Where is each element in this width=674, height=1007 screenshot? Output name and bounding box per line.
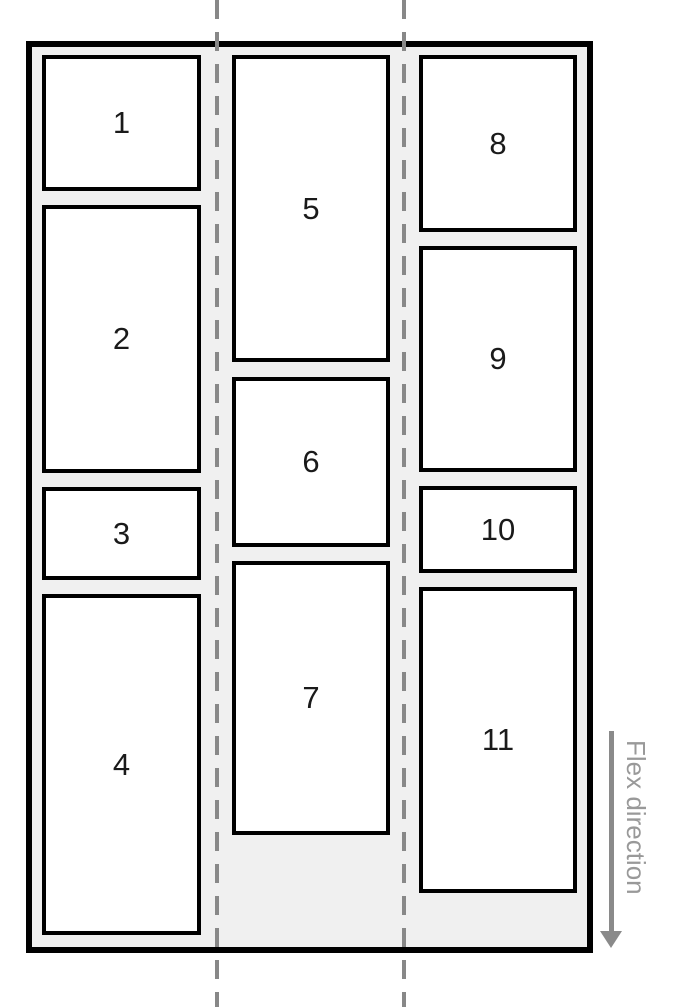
flex-item-3: 3: [42, 487, 201, 580]
flex-item-label: 1: [113, 105, 130, 141]
flex-container: 1 2 3 4 5 6 7 8 9 10 11: [26, 41, 593, 953]
flex-item-6: 6: [232, 377, 390, 547]
flex-direction-arrowhead-icon: [600, 931, 622, 948]
flex-item-10: 10: [419, 486, 577, 573]
flex-item-7: 7: [232, 561, 390, 835]
flex-direction-arrow-icon: [609, 731, 614, 932]
flex-wrap-diagram: 1 2 3 4 5 6 7 8 9 10 11 Flex direction: [0, 0, 674, 1007]
flex-item-11: 11: [419, 587, 577, 893]
flex-item-label: 4: [113, 747, 130, 783]
flex-item-label: 3: [113, 516, 130, 552]
flex-direction-label: Flex direction: [620, 740, 651, 895]
flex-item-5: 5: [232, 55, 390, 362]
flex-item-4: 4: [42, 594, 201, 935]
flex-item-2: 2: [42, 205, 201, 473]
flex-item-label: 10: [481, 512, 515, 548]
flex-item-9: 9: [419, 246, 577, 472]
flex-item-label: 2: [113, 321, 130, 357]
column-guide-line-1: [215, 0, 219, 1007]
flex-item-1: 1: [42, 55, 201, 191]
flex-item-label: 7: [302, 680, 319, 716]
flex-item-label: 5: [302, 191, 319, 227]
column-guide-line-2: [402, 0, 406, 1007]
flex-item-label: 6: [302, 444, 319, 480]
flex-item-label: 8: [489, 126, 506, 162]
flex-item-label: 9: [489, 341, 506, 377]
flex-item-label: 11: [482, 722, 514, 758]
flex-item-8: 8: [419, 55, 577, 232]
